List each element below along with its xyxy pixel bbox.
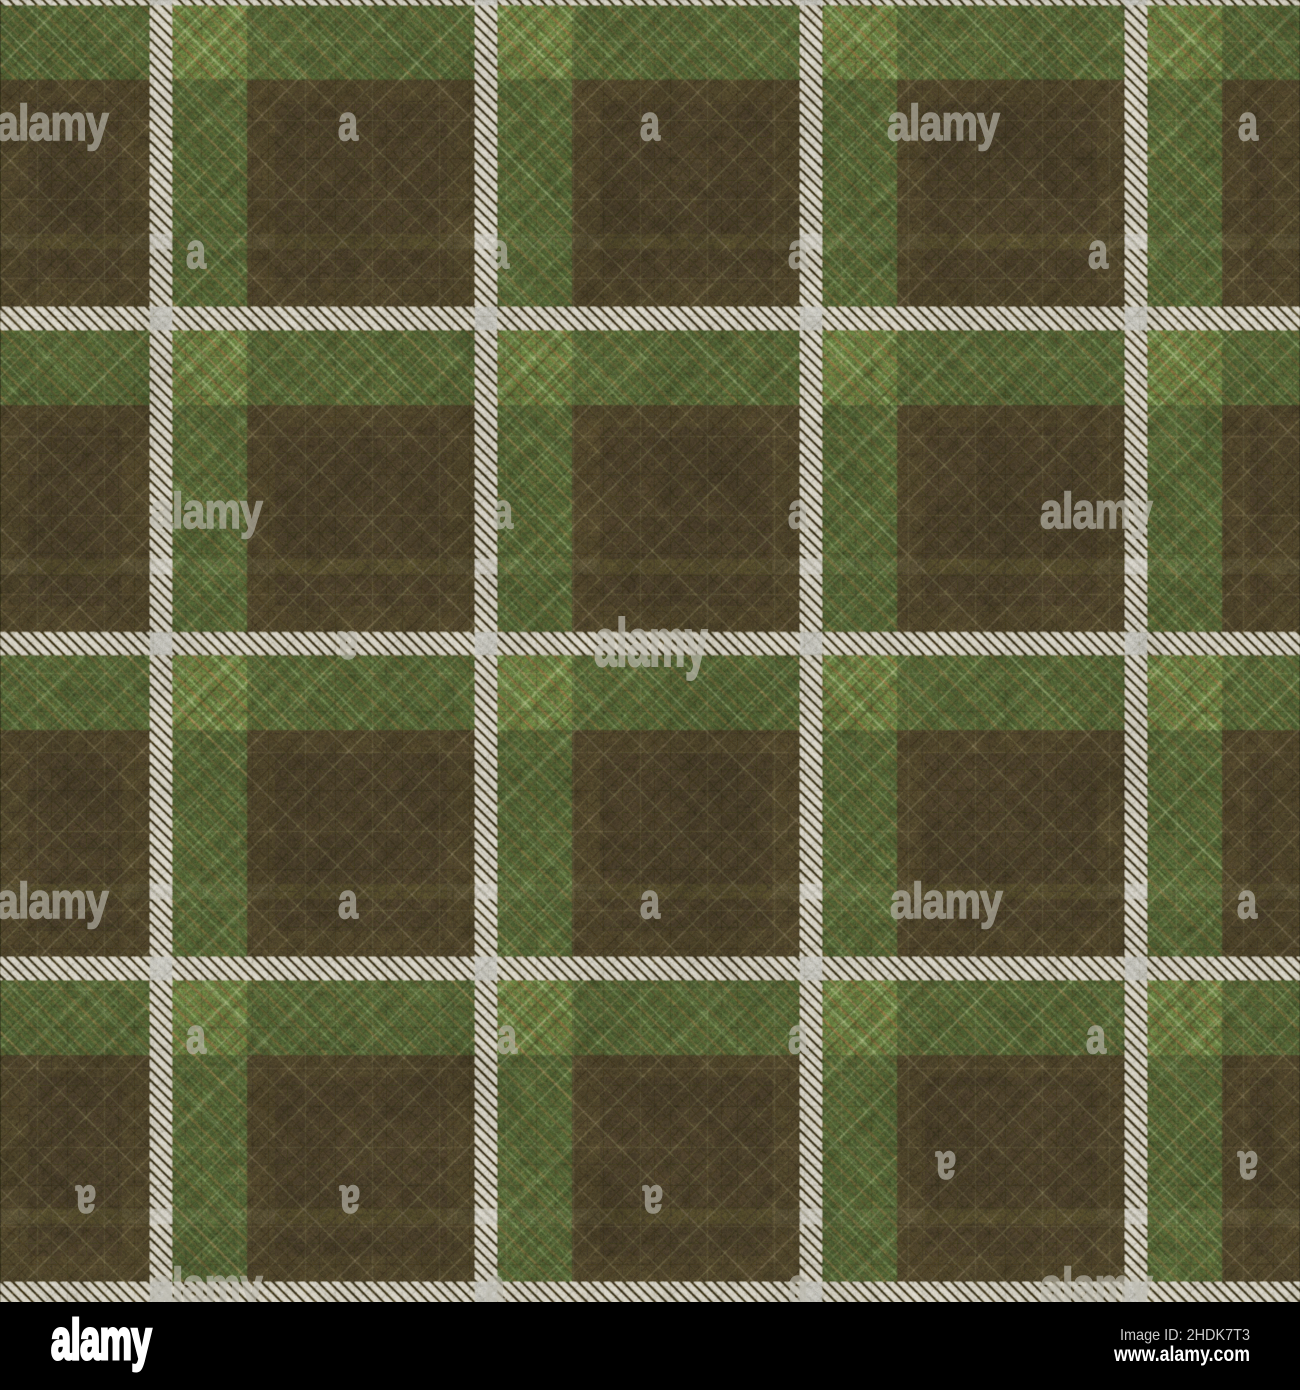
svg-text:a: a (75, 1175, 96, 1231)
svg-text:a: a (1086, 1008, 1107, 1064)
svg-text:alamy: alamy (887, 95, 1000, 151)
svg-text:alamy: alamy (594, 605, 708, 681)
svg-text:a: a (642, 1175, 663, 1231)
svg-text:a: a (489, 223, 510, 279)
svg-text:a: a (338, 873, 359, 929)
svg-text:a: a (788, 483, 809, 539)
svg-text:alamy: alamy (51, 1308, 152, 1372)
svg-text:a: a (935, 1141, 956, 1197)
svg-text:alamy: alamy (150, 483, 263, 539)
svg-text:a: a (1238, 95, 1259, 151)
svg-text:a: a (640, 873, 661, 929)
svg-text:alamy: alamy (0, 873, 109, 929)
svg-text:a: a (338, 95, 359, 151)
svg-text:alamy: alamy (0, 95, 109, 151)
svg-text:alamy: alamy (890, 873, 1003, 929)
svg-text:a: a (1237, 873, 1258, 929)
svg-text:a: a (1088, 223, 1109, 279)
svg-text:a: a (339, 1175, 360, 1231)
svg-text:a: a (186, 223, 207, 279)
svg-text:a: a (337, 621, 358, 677)
svg-text:Image ID: 2HDK7T3: Image ID: 2HDK7T3 (1120, 1327, 1250, 1344)
svg-text:a: a (788, 1008, 809, 1064)
svg-text:a: a (1237, 1141, 1258, 1197)
svg-text:www.alamy.com: www.alamy.com (1113, 1343, 1250, 1366)
svg-text:a: a (493, 483, 514, 539)
svg-text:a: a (640, 95, 661, 151)
svg-text:a: a (788, 223, 809, 279)
svg-text:a: a (186, 1008, 207, 1064)
svg-text:a: a (497, 1008, 518, 1064)
svg-text:alamy: alamy (1040, 483, 1153, 539)
